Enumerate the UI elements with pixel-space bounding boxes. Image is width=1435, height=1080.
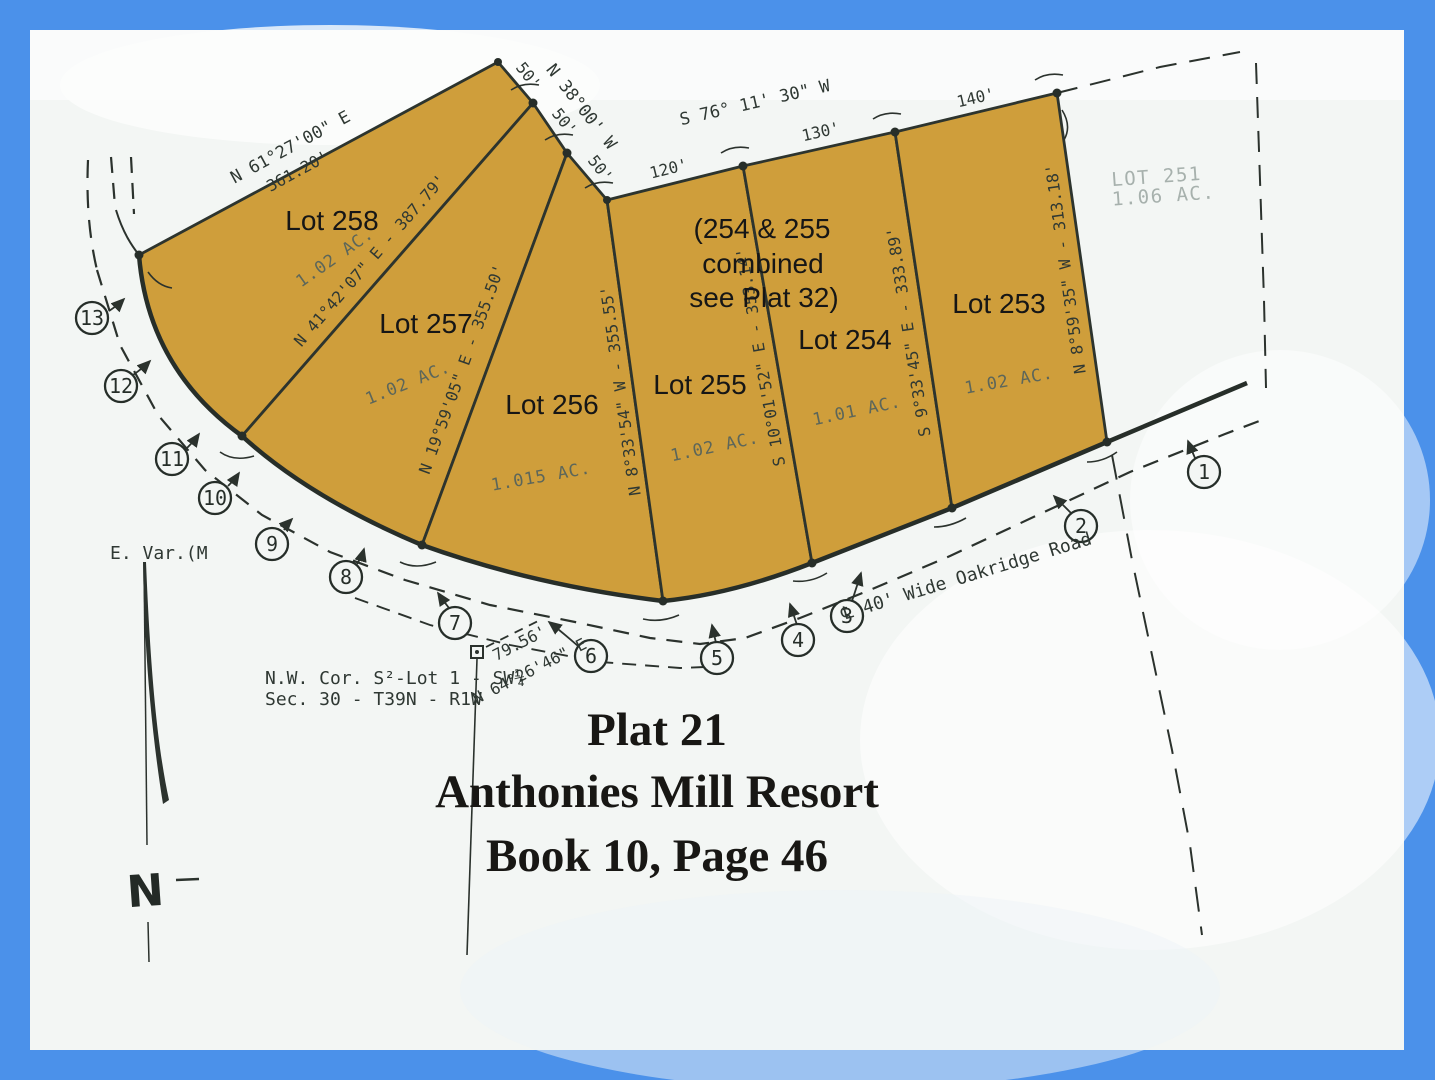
- lot-255-label: Lot 255: [653, 369, 746, 400]
- lot-257-label: Lot 257: [379, 308, 472, 339]
- lot-256-label: Lot 256: [505, 389, 598, 420]
- plat-title-line3: Book 10, Page 46: [486, 830, 828, 882]
- plat-title-line2: Anthonies Mill Resort: [435, 766, 879, 818]
- combined-note-line1: (254 & 255: [694, 213, 831, 244]
- station-number-13: 13: [80, 306, 104, 330]
- corner-note-line2: Sec. 30 - T39N - R1W: [265, 689, 482, 710]
- scan-shade-mid: [1130, 350, 1430, 650]
- station-number-7: 7: [449, 611, 461, 635]
- combined-note-line3: see Plat 32): [689, 282, 838, 313]
- station-number-5: 5: [711, 646, 723, 670]
- lot-253-label: Lot 253: [952, 288, 1045, 319]
- station-number-10: 10: [203, 486, 227, 510]
- station-number-4: 4: [792, 628, 804, 652]
- station-number-12: 12: [109, 374, 133, 398]
- section-corner-dot: [475, 650, 479, 654]
- east-variation-label: E. Var.(M: [110, 543, 208, 564]
- corner-note-line1: N.W. Cor. S²-Lot 1 - SW¼: [265, 668, 525, 689]
- station-number-1: 1: [1198, 460, 1210, 484]
- lot-254-label: Lot 254: [798, 324, 891, 355]
- station-number-11: 11: [160, 447, 184, 471]
- plat-scan-page: 13 12 11 10 9 8 7 6 5 4 3 2 1 N 61°27'00…: [0, 0, 1435, 1080]
- plat-title-line1: Plat 21: [587, 704, 727, 756]
- station-number-9: 9: [266, 532, 278, 556]
- north-arrow-letter: N: [125, 865, 165, 918]
- station-number-8: 8: [340, 565, 352, 589]
- plat-map-svg: 13 12 11 10 9 8 7 6 5 4 3 2 1 N 61°27'00…: [0, 0, 1435, 1080]
- combined-note-line2: combined: [702, 248, 823, 279]
